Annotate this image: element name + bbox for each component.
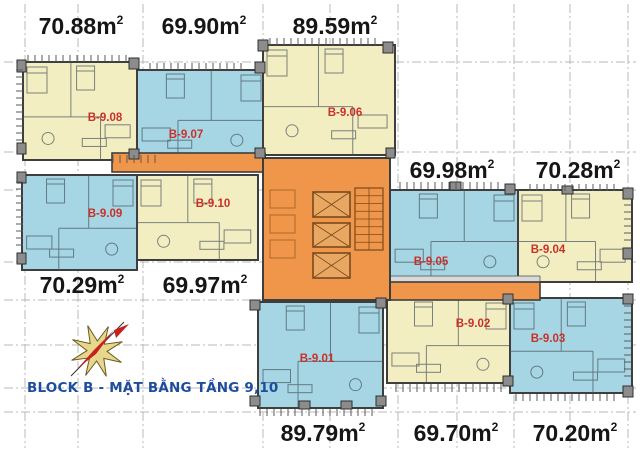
apartment-unit-B-9.03 xyxy=(510,298,632,393)
hatch-ticks xyxy=(516,394,614,401)
unit-outline xyxy=(137,70,265,160)
unit-code-label: B-9.02 xyxy=(456,318,491,330)
column-marker xyxy=(386,148,395,158)
area-label: 70.28m2 xyxy=(536,157,621,183)
apartment-unit-B-9.07 xyxy=(137,70,265,160)
unit-code-label: B-9.07 xyxy=(169,129,204,141)
unit-code-label: B-9.06 xyxy=(328,107,363,119)
unit-code-label: B-9.05 xyxy=(414,256,449,268)
column-marker xyxy=(341,401,352,409)
column-marker xyxy=(258,40,268,51)
column-marker xyxy=(17,253,26,264)
unit-outline xyxy=(22,175,137,270)
column-marker xyxy=(255,148,265,158)
apartment-unit-B-9.06 xyxy=(263,45,395,155)
floor-plan-canvas: B-9.08B-9.07B-9.06B-9.09B-9.10B-9.05B-9.… xyxy=(0,0,640,452)
unit-code-label: B-9.01 xyxy=(300,353,335,365)
column-marker xyxy=(376,298,386,308)
hatch-ticks xyxy=(270,38,375,45)
unit-code-label: B-9.09 xyxy=(88,208,123,220)
area-label: 69.70m2 xyxy=(414,420,499,446)
unit-outline xyxy=(387,298,510,383)
unit-outline xyxy=(518,190,632,282)
apartment-unit-B-9.10 xyxy=(137,175,258,260)
column-marker xyxy=(383,42,393,53)
apartment-unit-B-9.05 xyxy=(390,190,518,282)
unit-code-label: B-9.08 xyxy=(88,112,123,124)
column-marker xyxy=(623,248,632,259)
area-label: 70.88m2 xyxy=(39,13,124,39)
unit-code-label: B-9.04 xyxy=(531,244,566,256)
compass-pennant xyxy=(114,324,129,338)
elevator-icon xyxy=(313,253,350,278)
unit-outline xyxy=(390,190,518,282)
column-marker xyxy=(503,376,513,386)
column-marker xyxy=(17,143,26,154)
column-marker xyxy=(17,172,26,183)
unit-outline xyxy=(510,298,632,393)
area-label: 70.20m2 xyxy=(533,420,618,446)
column-marker xyxy=(562,186,573,194)
column-marker xyxy=(623,294,633,304)
unit-code-label: B-9.10 xyxy=(196,198,231,210)
elevator-icon xyxy=(313,192,350,217)
column-marker xyxy=(129,58,139,69)
column-marker xyxy=(505,184,515,194)
corridor-edge-band xyxy=(385,276,540,282)
column-marker xyxy=(250,300,260,310)
area-label: 89.79m2 xyxy=(281,420,366,446)
column-marker xyxy=(250,396,260,406)
hatch-ticks xyxy=(150,63,241,70)
unit-outline xyxy=(263,45,395,155)
column-marker xyxy=(299,401,310,409)
hatch-ticks xyxy=(16,70,23,140)
area-label: 70.29m2 xyxy=(40,272,125,298)
area-label: 89.59m2 xyxy=(293,13,378,39)
unit-outline xyxy=(137,175,258,260)
compass-rose-icon xyxy=(71,322,129,376)
unit-outline xyxy=(23,62,137,160)
column-marker xyxy=(255,62,265,73)
column-marker xyxy=(623,386,633,397)
area-label: 69.98m2 xyxy=(410,157,495,183)
elevator-icon xyxy=(313,223,350,247)
hatch-ticks xyxy=(400,182,498,189)
unit-code-label: B-9.03 xyxy=(531,333,566,345)
apartment-unit-B-9.08 xyxy=(23,62,137,160)
column-marker xyxy=(503,294,513,304)
hatch-ticks xyxy=(28,55,126,62)
apartment-unit-B-9.04 xyxy=(518,190,632,282)
plan-title: BLOCK B - MẶT BẰNG TẦNG 9,10 xyxy=(27,380,247,396)
area-label: 69.97m2 xyxy=(163,272,248,298)
corridor xyxy=(385,282,540,300)
apartment-unit-B-9.09 xyxy=(22,175,137,270)
column-marker xyxy=(623,188,633,199)
area-label: 69.90m2 xyxy=(162,13,247,39)
apartment-unit-B-9.02 xyxy=(387,298,510,383)
column-marker xyxy=(376,396,386,406)
